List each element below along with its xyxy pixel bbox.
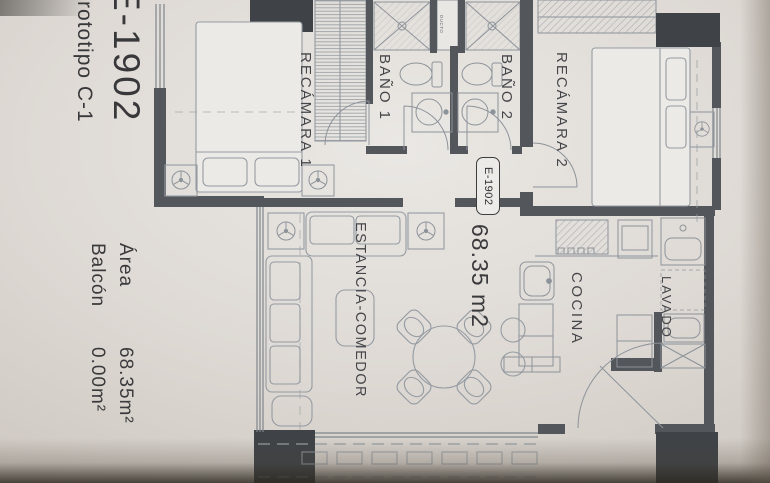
bed-bedroom1 [196,22,302,192]
bed-bedroom2 [592,48,690,206]
unit-area-text: 68.35 m2 [466,224,493,328]
area-table: Área68.35m² Balcón0.00m² [80,243,136,424]
bathroom-showers [374,0,520,50]
balcony-row: Balcón0.00m² [86,243,108,424]
unit-tag-text: E-1902 [482,167,494,205]
unit-tag-box: E-1902 [476,157,500,215]
unit-subtitle: Prototipo C-1 [72,0,96,123]
title-block: E-1902 Prototipo C-1 [72,0,147,123]
fan-icon [277,222,295,240]
area-value: 68.35m² [115,347,136,424]
room-label-cocina: COCINA [568,272,585,345]
balcony-label: Balcón [86,243,108,347]
room-label-lavado: LAVADO [659,276,674,339]
unit-title: E-1902 [105,0,147,123]
floor-plan-photo: E-1902 Prototipo C-1 Área68.35m² Balcón0… [0,0,770,483]
room-label-bano-1: BAÑO 1 [376,54,393,121]
balcony-value: 0.00m² [87,347,108,412]
room-label-ducto: DUCTO [439,15,444,33]
room-label-bano-2: BAÑO 2 [498,54,515,121]
fan-icon [309,171,327,189]
room-label-estancia-comedor: ESTANCIA-COMEDOR [352,222,368,398]
fan-icon [172,171,190,189]
area-row: Área68.35m² [114,243,136,424]
room-label-recamara-1: RECÁMARA 1 [297,52,314,169]
room-label-recamara-2: RECÁMARA 2 [553,52,570,169]
area-label: Área [114,243,136,347]
fan-icon [417,222,435,240]
